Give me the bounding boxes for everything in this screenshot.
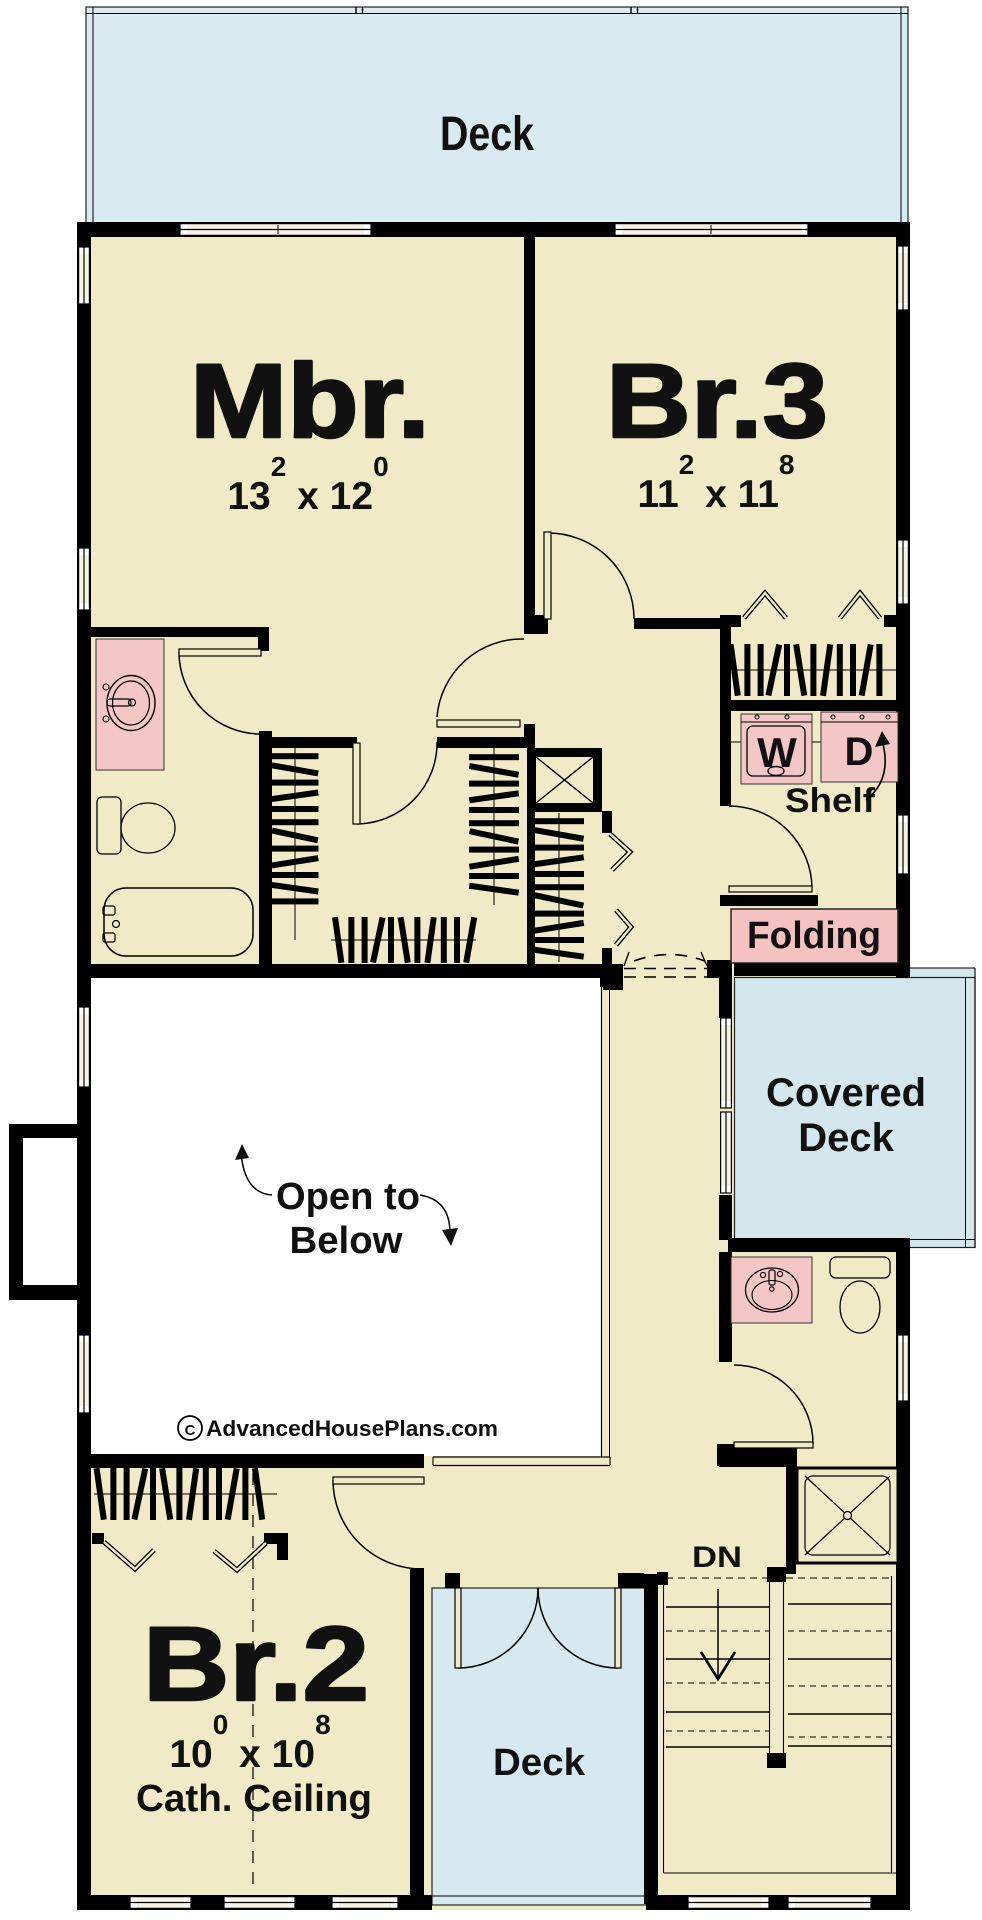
svg-text:Folding: Folding <box>747 915 881 957</box>
svg-text:Mbr.: Mbr. <box>190 343 430 460</box>
svg-text:D: D <box>845 730 874 774</box>
svg-text:Below: Below <box>290 1220 403 1262</box>
svg-text:Shelf: Shelf <box>785 782 876 820</box>
svg-text:Covered: Covered <box>766 1071 926 1115</box>
svg-text:C: C <box>185 1422 196 1439</box>
svg-text:DN: DN <box>692 1541 742 1574</box>
svg-text:AdvancedHousePlans.com: AdvancedHousePlans.com <box>206 1416 498 1441</box>
svg-text:Deck: Deck <box>440 108 534 161</box>
svg-text:Br.2: Br.2 <box>143 1606 369 1723</box>
svg-text:Br.3: Br.3 <box>606 343 828 460</box>
svg-text:Deck: Deck <box>798 1116 894 1160</box>
svg-text:Deck: Deck <box>493 1742 586 1784</box>
svg-text:Cath. Ceiling: Cath. Ceiling <box>136 1778 372 1820</box>
svg-text:Open to: Open to <box>276 1176 420 1218</box>
svg-text:W: W <box>757 729 797 776</box>
